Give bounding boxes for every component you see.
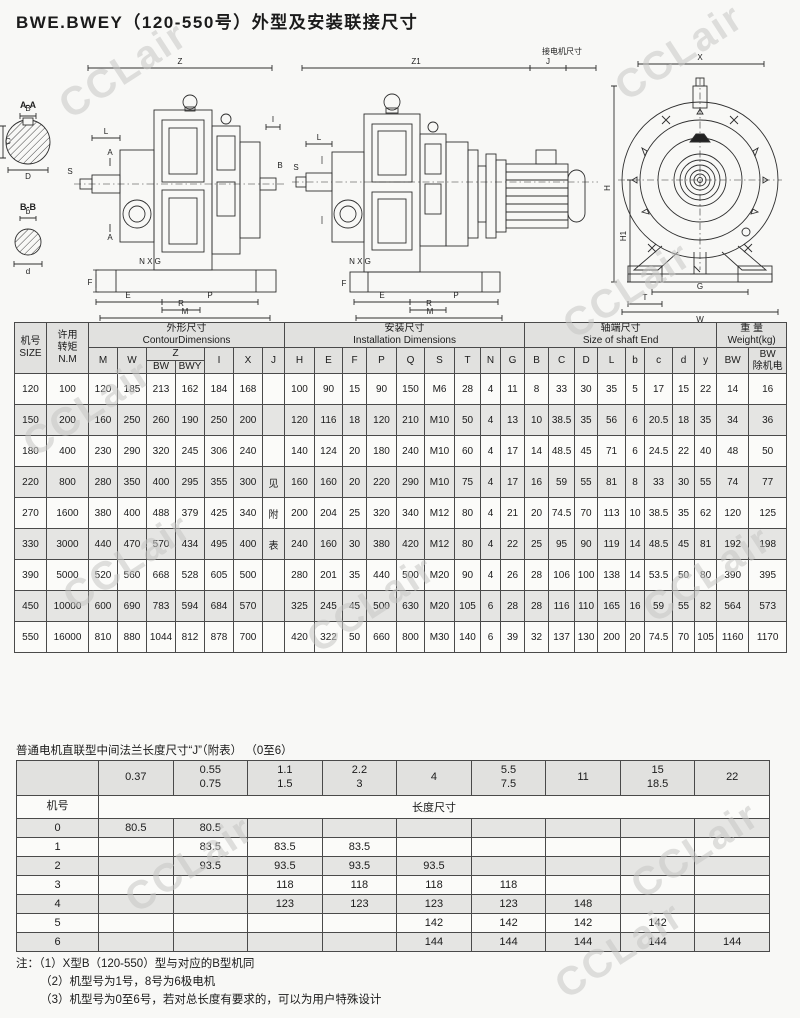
spec-cell: M30 <box>425 622 455 653</box>
size-cell: 450 <box>15 591 47 622</box>
dim-label-t: T <box>643 293 648 302</box>
spec-cell: 45 <box>575 436 598 467</box>
size-cell: 120 <box>15 374 47 405</box>
spec-cell: 100 <box>47 374 89 405</box>
dim-label-h1: H1 <box>619 230 628 241</box>
spec-cell: 400 <box>147 467 176 498</box>
length-cell: 144 <box>397 933 472 952</box>
header-h: H <box>285 348 315 374</box>
spec-cell: 16000 <box>47 622 89 653</box>
spec-cell: 55 <box>575 467 598 498</box>
spec-row-270: 2701600380400488379425340附20020425320340… <box>15 498 787 529</box>
spec-cell: 25 <box>525 529 549 560</box>
spec-cell: 245 <box>176 436 205 467</box>
spec-cell: 500 <box>397 560 425 591</box>
spec-cell: 50 <box>673 560 695 591</box>
spec-cell: 59 <box>645 591 673 622</box>
spec-cell: M12 <box>425 529 455 560</box>
length-cell: 93.5 <box>248 857 323 876</box>
header-j: J <box>263 348 285 374</box>
dimensions-table-body: 120100120185213162184168100901590150M628… <box>15 374 787 653</box>
spec-cell: 3000 <box>47 529 89 560</box>
spec-cell: 15 <box>343 374 367 405</box>
spec-cell: 700 <box>234 622 263 653</box>
length-cell: 118 <box>471 876 546 895</box>
length-cell: 93.5 <box>397 857 472 876</box>
spec-cell: 210 <box>397 405 425 436</box>
length-cell: 83.5 <box>173 838 248 857</box>
spec-cell: 38.5 <box>549 405 575 436</box>
spec-cell: 18 <box>673 405 695 436</box>
drawing-front-view: X H H1 G T W <box>600 38 800 324</box>
machine-no-cell: 4 <box>17 895 99 914</box>
spec-cell: 表 <box>263 529 285 560</box>
spec-cell: M10 <box>425 467 455 498</box>
dim-label-p: P <box>207 291 212 300</box>
spec-cell: 160 <box>89 405 118 436</box>
spec-cell: 26 <box>501 560 525 591</box>
spec-cell: 71 <box>598 436 626 467</box>
spec-cell: 4 <box>481 560 501 591</box>
length-cell: 144 <box>471 933 546 952</box>
spec-cell: 240 <box>397 436 425 467</box>
header-shaft-b-small: b <box>626 348 645 374</box>
header-q: Q <box>397 348 425 374</box>
length-cell <box>248 819 323 838</box>
spec-cell: 810 <box>89 622 118 653</box>
spec-cell: 15 <box>673 374 695 405</box>
spec-cell: 4 <box>481 529 501 560</box>
spec-cell: 137 <box>549 622 575 653</box>
length-cell: 142 <box>471 914 546 933</box>
spec-cell: 168 <box>234 374 263 405</box>
spec-cell: 250 <box>118 405 147 436</box>
spec-cell: 200 <box>598 622 626 653</box>
spec-cell: 14 <box>626 560 645 591</box>
flange-table-header: 0.37 0.55 0.75 1.1 1.5 2.2 3 4 5.5 7.5 1… <box>17 761 770 819</box>
spec-cell: 50 <box>455 405 481 436</box>
header-s: S <box>425 348 455 374</box>
flange-row-2: 293.593.593.593.5 <box>17 857 770 876</box>
spec-row-550: 5501600081088010448128787004203225066080… <box>15 622 787 653</box>
spec-cell: 8 <box>525 374 549 405</box>
spec-cell: 783 <box>147 591 176 622</box>
spec-cell: 45 <box>343 591 367 622</box>
length-cell <box>695 895 770 914</box>
flange-table-body: 080.580.5183.583.583.5293.593.593.593.53… <box>17 819 770 952</box>
spec-cell: 4 <box>481 405 501 436</box>
drawing-bwey-side-view: Z1 J 接电机尺寸 L S N X G F E P R M <box>290 38 600 324</box>
size-cell: 150 <box>15 405 47 436</box>
spec-cell: 33 <box>645 467 673 498</box>
spec-cell: 74.5 <box>645 622 673 653</box>
dim-label-s: S <box>67 167 72 176</box>
spec-cell: 600 <box>89 591 118 622</box>
spec-cell: 20 <box>626 622 645 653</box>
spec-cell: 340 <box>234 498 263 529</box>
spec-cell: 74.5 <box>549 498 575 529</box>
spec-cell: 100 <box>285 374 315 405</box>
spec-cell: 80 <box>455 498 481 529</box>
dim-label-e: E <box>379 291 384 300</box>
spec-cell: 6 <box>481 622 501 653</box>
spec-cell: 105 <box>455 591 481 622</box>
spec-cell: 100 <box>575 560 598 591</box>
power-col: 1.1 1.5 <box>248 761 323 796</box>
dim-label-motor-size: 接电机尺寸 <box>542 46 582 56</box>
header-group-installation: 安装尺寸 Installation Dimensions <box>285 323 525 348</box>
spec-cell: M12 <box>425 498 455 529</box>
spec-cell: 230 <box>89 436 118 467</box>
spec-cell: 684 <box>205 591 234 622</box>
machine-no-cell: 5 <box>17 914 99 933</box>
spec-cell: 32 <box>525 622 549 653</box>
power-col: 22 <box>695 761 770 796</box>
header-size: 机号 SIZE <box>15 323 47 374</box>
spec-cell: 16 <box>525 467 549 498</box>
spec-cell: 690 <box>118 591 147 622</box>
spec-cell: 附 <box>263 498 285 529</box>
spec-cell: 1044 <box>147 622 176 653</box>
spec-cell: 355 <box>205 467 234 498</box>
spec-cell: M20 <box>425 560 455 591</box>
spec-cell: 13 <box>501 405 525 436</box>
dim-label-e: E <box>125 291 130 300</box>
spec-cell: 80 <box>455 529 481 560</box>
spec-cell: 425 <box>205 498 234 529</box>
spec-cell: 25 <box>343 498 367 529</box>
spec-cell: 162 <box>176 374 205 405</box>
spec-cell: 10000 <box>47 591 89 622</box>
spec-cell: 420 <box>397 529 425 560</box>
dim-label-a1: A <box>107 148 113 157</box>
spec-cell: 124 <box>315 436 343 467</box>
spec-cell: 90 <box>455 560 481 591</box>
spec-cell: 22 <box>501 529 525 560</box>
spec-cell: M10 <box>425 436 455 467</box>
spec-cell: 380 <box>89 498 118 529</box>
header-g: G <box>501 348 525 374</box>
technical-drawings: A-A B-B B C D b d Z L A A S I B N X G F … <box>0 38 800 324</box>
spec-cell: 200 <box>234 405 263 436</box>
length-dim-label: 长度尺寸 <box>99 796 770 819</box>
spec-cell: 880 <box>118 622 147 653</box>
header-e: E <box>315 348 343 374</box>
spec-cell: 570 <box>147 529 176 560</box>
spec-cell: 400 <box>118 498 147 529</box>
header-z-bwy: BWY <box>176 361 205 374</box>
spec-cell: M20 <box>425 591 455 622</box>
header-p: P <box>367 348 397 374</box>
spec-cell: 325 <box>285 591 315 622</box>
spec-cell: 250 <box>205 405 234 436</box>
spec-row-180: 18040023029032024530624014012420180240M1… <box>15 436 787 467</box>
spec-cell: 190 <box>176 405 205 436</box>
spec-cell: 800 <box>47 467 89 498</box>
spec-cell: 10 <box>626 498 645 529</box>
spec-cell: 6 <box>481 591 501 622</box>
spec-cell: 33 <box>549 374 575 405</box>
spec-row-120: 120100120185213162184168100901590150M628… <box>15 374 787 405</box>
drawing-bwe-side-view: A-A B-B B C D b d Z L A A S I B N X G F … <box>0 38 290 324</box>
length-cell <box>546 838 621 857</box>
spec-cell: 105 <box>695 622 717 653</box>
header-shaft-b: B <box>525 348 549 374</box>
length-cell <box>546 857 621 876</box>
header-group-shaft: 轴端尺寸 Size of shaft End <box>525 323 717 348</box>
length-cell <box>99 914 174 933</box>
spec-cell: 59 <box>549 467 575 498</box>
size-cell: 220 <box>15 467 47 498</box>
length-cell: 144 <box>546 933 621 952</box>
spec-cell: 82 <box>695 591 717 622</box>
dim-label-l: L <box>104 127 109 136</box>
machine-no-cell: 3 <box>17 876 99 895</box>
spec-cell: 213 <box>147 374 176 405</box>
spec-cell: 56 <box>598 405 626 436</box>
length-cell <box>620 838 695 857</box>
size-cell: 390 <box>15 560 47 591</box>
spec-cell: 90 <box>575 529 598 560</box>
spec-cell <box>263 622 285 653</box>
length-cell: 144 <box>695 933 770 952</box>
spec-cell: 1600 <box>47 498 89 529</box>
length-cell: 144 <box>620 933 695 952</box>
spec-cell: 200 <box>285 498 315 529</box>
spec-cell: 48 <box>717 436 749 467</box>
spec-cell: 110 <box>575 591 598 622</box>
spec-cell: 495 <box>205 529 234 560</box>
spec-cell: 16 <box>749 374 787 405</box>
spec-cell: 322 <box>315 622 343 653</box>
spec-cell: 380 <box>367 529 397 560</box>
spec-cell: 5 <box>626 374 645 405</box>
header-shaft-c: C <box>549 348 575 374</box>
spec-cell: 245 <box>315 591 343 622</box>
machine-no-cell: 2 <box>17 857 99 876</box>
spec-cell: 200 <box>47 405 89 436</box>
spec-cell: 295 <box>176 467 205 498</box>
dim-label-f: F <box>342 279 347 288</box>
spec-cell: 10 <box>525 405 549 436</box>
header-i: I <box>205 348 234 374</box>
spec-cell: 800 <box>397 622 425 653</box>
header-weight-bw-motor: BW 除机电 <box>749 348 787 374</box>
header-shaft-y: y <box>695 348 717 374</box>
spec-cell: 75 <box>455 467 481 498</box>
dim-label-m: M <box>182 307 189 316</box>
spec-cell: 240 <box>234 436 263 467</box>
spec-cell: 77 <box>749 467 787 498</box>
dim-label-b-top: B <box>25 104 30 113</box>
spec-cell: 22 <box>695 374 717 405</box>
length-cell: 83.5 <box>248 838 323 857</box>
spec-cell: 395 <box>749 560 787 591</box>
spec-cell: 4 <box>481 436 501 467</box>
spec-cell: 160 <box>285 467 315 498</box>
spec-cell: 528 <box>176 560 205 591</box>
length-cell: 123 <box>397 895 472 914</box>
spec-cell: 390 <box>717 560 749 591</box>
length-cell <box>471 838 546 857</box>
length-cell <box>322 933 397 952</box>
header-w: W <box>118 348 147 374</box>
power-col: 0.37 <box>99 761 174 796</box>
length-cell: 93.5 <box>322 857 397 876</box>
spec-cell: 50 <box>749 436 787 467</box>
length-cell <box>173 895 248 914</box>
spec-cell: 34 <box>717 405 749 436</box>
length-cell <box>471 857 546 876</box>
length-cell <box>99 895 174 914</box>
machine-no-cell: 1 <box>17 838 99 857</box>
spec-cell: 420 <box>285 622 315 653</box>
length-cell <box>173 876 248 895</box>
length-cell <box>695 876 770 895</box>
spec-cell: 14 <box>626 529 645 560</box>
header-group-weight: 重 量 Weight(kg) <box>717 323 787 348</box>
spec-cell: 119 <box>598 529 626 560</box>
spec-cell: 90 <box>367 374 397 405</box>
spec-cell: 140 <box>455 622 481 653</box>
length-cell: 148 <box>546 895 621 914</box>
spec-cell: 668 <box>147 560 176 591</box>
length-cell <box>695 819 770 838</box>
spec-cell: 74 <box>717 467 749 498</box>
length-cell: 80.5 <box>173 819 248 838</box>
spec-cell: 14 <box>717 374 749 405</box>
power-col: 2.2 3 <box>322 761 397 796</box>
spec-cell: 290 <box>397 467 425 498</box>
spec-cell: 55 <box>695 467 717 498</box>
spec-cell: 500 <box>367 591 397 622</box>
spec-cell: 17 <box>645 374 673 405</box>
length-cell <box>695 914 770 933</box>
spec-cell: 50 <box>343 622 367 653</box>
length-cell: 118 <box>397 876 472 895</box>
spec-cell: 见 <box>263 467 285 498</box>
spec-cell: 81 <box>695 529 717 560</box>
dim-label-nxg: N X G <box>139 257 161 266</box>
spec-cell: 35 <box>598 374 626 405</box>
dim-label-g: G <box>697 282 703 291</box>
spec-cell: 560 <box>118 560 147 591</box>
spec-cell: 20 <box>343 436 367 467</box>
header-torque: 许用 转矩 N.M <box>47 323 89 374</box>
spec-row-220: 220800280350400295355300见16016020220290M… <box>15 467 787 498</box>
length-cell <box>322 819 397 838</box>
spec-cell: 4 <box>481 374 501 405</box>
header-z: Z <box>147 348 205 361</box>
dim-label-z: Z <box>178 57 183 66</box>
spec-cell: 201 <box>315 560 343 591</box>
length-cell <box>695 857 770 876</box>
footnote-line: （3）机型号为0至6号，若对总长度有要求的，可以为用户特殊设计 <box>40 992 381 1010</box>
header-x: X <box>234 348 263 374</box>
length-cell: 123 <box>471 895 546 914</box>
footnotes: 注：（1）X型B（120-550）型与对应的B型机同 （2）机型号为1号，8号为… <box>16 956 381 1009</box>
spec-cell: 70 <box>575 498 598 529</box>
spec-cell: 240 <box>285 529 315 560</box>
length-cell <box>620 895 695 914</box>
spec-cell: 45 <box>673 529 695 560</box>
dim-label-p: P <box>453 291 458 300</box>
length-cell <box>620 819 695 838</box>
dim-label-a2: A <box>107 233 113 242</box>
dim-label-m: M <box>427 307 434 316</box>
page-title: BWE.BWEY（120-550号）外型及安装联接尺寸 <box>16 8 418 33</box>
spec-cell: 20 <box>343 467 367 498</box>
spec-cell: 39 <box>501 622 525 653</box>
spec-cell: 120 <box>717 498 749 529</box>
header-z-bw: BW <box>147 361 176 374</box>
length-cell: 80.5 <box>99 819 174 838</box>
spec-row-150: 15020016025026019025020012011618120210M1… <box>15 405 787 436</box>
spec-cell: 90 <box>315 374 343 405</box>
spec-cell: 280 <box>89 467 118 498</box>
spec-cell: 20 <box>525 498 549 529</box>
machine-no-label: 机号 <box>17 796 99 819</box>
spec-cell: 17 <box>501 467 525 498</box>
spec-cell: 35 <box>695 405 717 436</box>
length-cell: 123 <box>248 895 323 914</box>
length-cell: 123 <box>322 895 397 914</box>
length-cell <box>546 819 621 838</box>
spec-cell: 605 <box>205 560 234 591</box>
catalog-page: BWE.BWEY（120-550号）外型及安装联接尺寸 <box>0 0 800 1018</box>
footnote-line: （2）机型号为1号，8号为6极电机 <box>40 974 381 992</box>
dim-label-d-small: d <box>26 267 30 276</box>
spec-cell: 48.5 <box>645 529 673 560</box>
dim-label-b-small: b <box>26 207 31 216</box>
flange-row-6: 6144144144144144 <box>17 933 770 952</box>
length-cell <box>99 876 174 895</box>
length-cell: 118 <box>248 876 323 895</box>
spec-cell: 165 <box>598 591 626 622</box>
length-cell: 142 <box>546 914 621 933</box>
spec-cell: 185 <box>118 374 147 405</box>
dim-label-nxg: N X G <box>349 257 371 266</box>
spec-cell: 198 <box>749 529 787 560</box>
spec-cell: 18 <box>343 405 367 436</box>
spec-cell: 160 <box>315 529 343 560</box>
header-group-contour: 外形尺寸 ContourDimensions <box>89 323 285 348</box>
spec-cell: 4 <box>481 467 501 498</box>
length-cell <box>99 838 174 857</box>
dim-label-j: J <box>546 57 550 66</box>
length-cell: 83.5 <box>322 838 397 857</box>
length-cell <box>322 914 397 933</box>
dim-label-z1: Z1 <box>411 57 421 66</box>
spec-cell: 22 <box>673 436 695 467</box>
spec-cell: 320 <box>367 498 397 529</box>
flange-row-5: 5142142142142 <box>17 914 770 933</box>
dimensions-table: 机号 SIZE 许用 转矩 N.M 外形尺寸 ContourDimensions… <box>14 322 787 653</box>
spec-cell: 81 <box>598 467 626 498</box>
header-shaft-d: D <box>575 348 598 374</box>
power-col: 5.5 7.5 <box>471 761 546 796</box>
spec-cell: 260 <box>147 405 176 436</box>
spec-cell: 60 <box>455 436 481 467</box>
flange-table-title: 普通电机直联型中间法兰长度尺寸“J”（附表） （0至6） <box>16 742 293 758</box>
spec-cell: 6 <box>626 436 645 467</box>
spec-cell: 116 <box>549 591 575 622</box>
spec-cell: 180 <box>367 436 397 467</box>
spec-cell: 160 <box>315 467 343 498</box>
length-cell <box>99 933 174 952</box>
dim-label-l: L <box>317 133 322 142</box>
spec-cell: 564 <box>717 591 749 622</box>
